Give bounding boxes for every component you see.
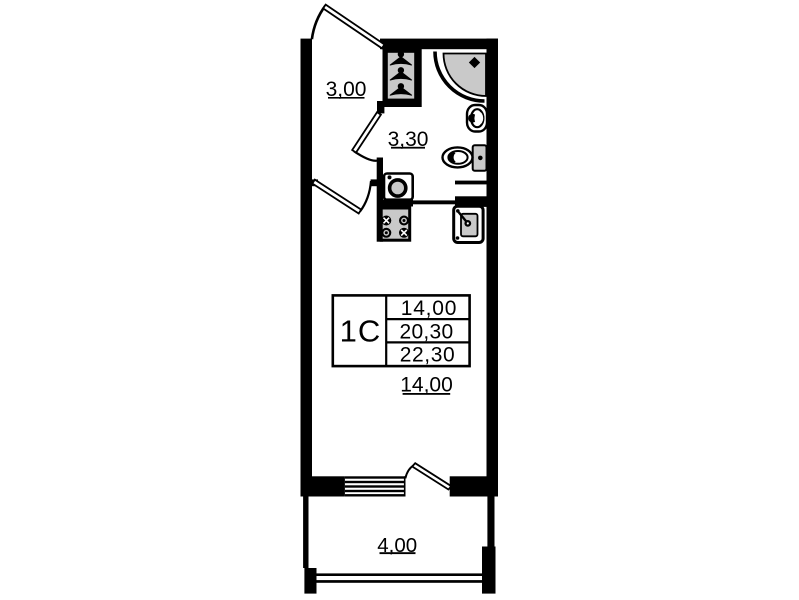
- svg-text:20,30: 20,30: [399, 320, 453, 343]
- svg-text:14,00: 14,00: [401, 297, 458, 320]
- svg-text:22,30: 22,30: [400, 344, 456, 367]
- svg-text:1C: 1C: [340, 313, 382, 348]
